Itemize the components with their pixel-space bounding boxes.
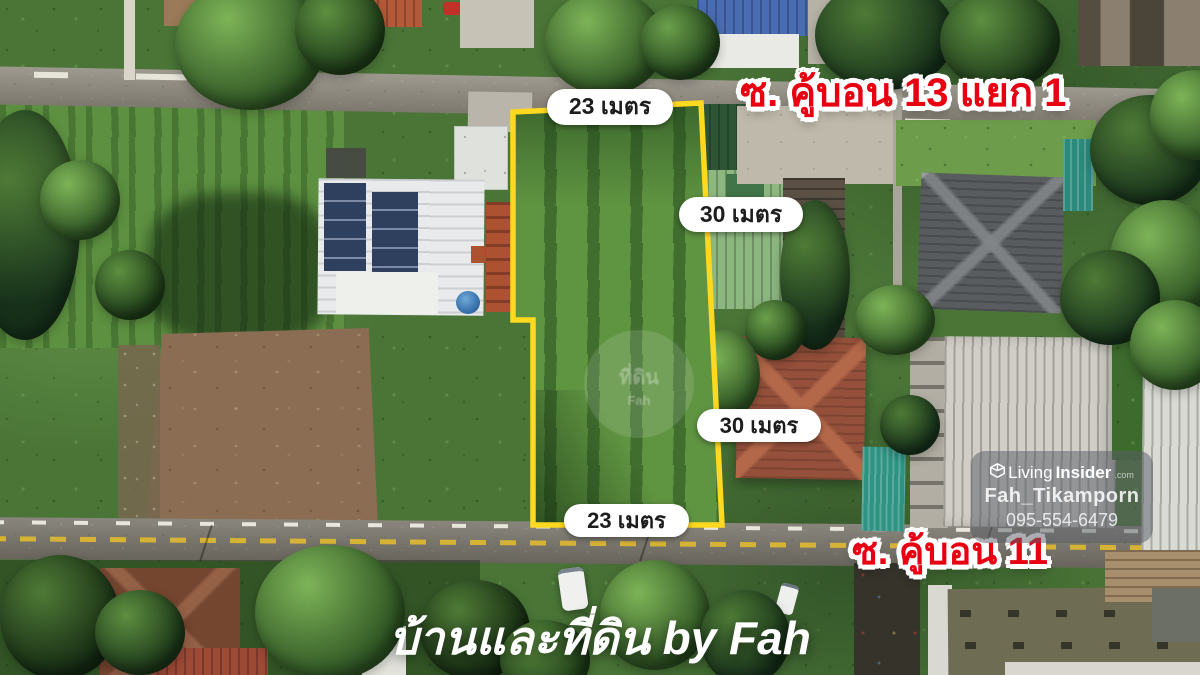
dimension-label-top: 23 เมตร	[547, 89, 673, 125]
old-buildings	[1078, 0, 1200, 66]
tree-blob	[855, 285, 935, 355]
land-plot-interior	[505, 95, 730, 535]
circle-watermark: ที่ดิน Fah	[584, 330, 694, 438]
circle-watermark-subtext: Fah	[627, 393, 650, 408]
top-road-fence	[34, 72, 68, 79]
solar-panels	[372, 192, 418, 272]
agent-name: Fah_Tikamporn	[984, 485, 1139, 508]
street-label-top: ซ. คู้บอน 13 แยก 1	[740, 60, 1066, 124]
house-lower-wing	[336, 272, 438, 315]
blue-umbrella	[456, 291, 480, 314]
dimension-label-right-lower: 30 เมตร	[697, 409, 821, 442]
teal-shed	[861, 447, 905, 532]
tree-blob	[640, 5, 720, 80]
dirt-debris-edge	[118, 345, 160, 525]
skylight-row	[965, 642, 1195, 649]
teal-container	[1063, 139, 1093, 211]
dimension-label-right-upper: 30 เมตร	[679, 197, 803, 232]
tree-blob	[95, 590, 185, 675]
tree-blob	[95, 250, 165, 320]
footer-watermark: บ้านและที่ดิน by Fah	[389, 602, 811, 675]
dark-carport	[326, 148, 366, 178]
field-tree-shadow	[148, 193, 333, 345]
aerial-photo: ที่ดิน Fah 23 เมตร 30 เมตร 30 เมตร 23 เม…	[0, 0, 1200, 675]
gray-hip-roof-house	[917, 173, 1066, 314]
tree-blob	[255, 545, 405, 675]
orange-shed	[471, 246, 485, 263]
white-wall	[124, 0, 135, 80]
solar-panels	[324, 183, 366, 271]
tree-blob	[880, 395, 940, 455]
white-roof-edge	[1005, 662, 1200, 675]
paving	[460, 0, 534, 48]
livinginsider-logo-icon	[990, 463, 1005, 478]
dirt-plot	[146, 328, 378, 527]
gray-small-roof	[1152, 588, 1200, 642]
dimension-label-bottom: 23 เมตร	[564, 504, 689, 537]
circle-watermark-text: ที่ดิน	[619, 361, 659, 393]
tree-blob	[40, 160, 120, 240]
brand-name-bold: Insider	[1056, 463, 1112, 483]
brand-logo-row: Living Insider .com	[990, 463, 1134, 483]
brand-name-light: Living	[1008, 463, 1052, 483]
brand-watermark-box: Living Insider .com Fah_Tikamporn 095-55…	[971, 451, 1153, 543]
brand-suffix: .com	[1114, 470, 1134, 480]
agent-phone: 095-554-6479	[1006, 510, 1118, 531]
orange-narrow-building	[486, 202, 514, 312]
